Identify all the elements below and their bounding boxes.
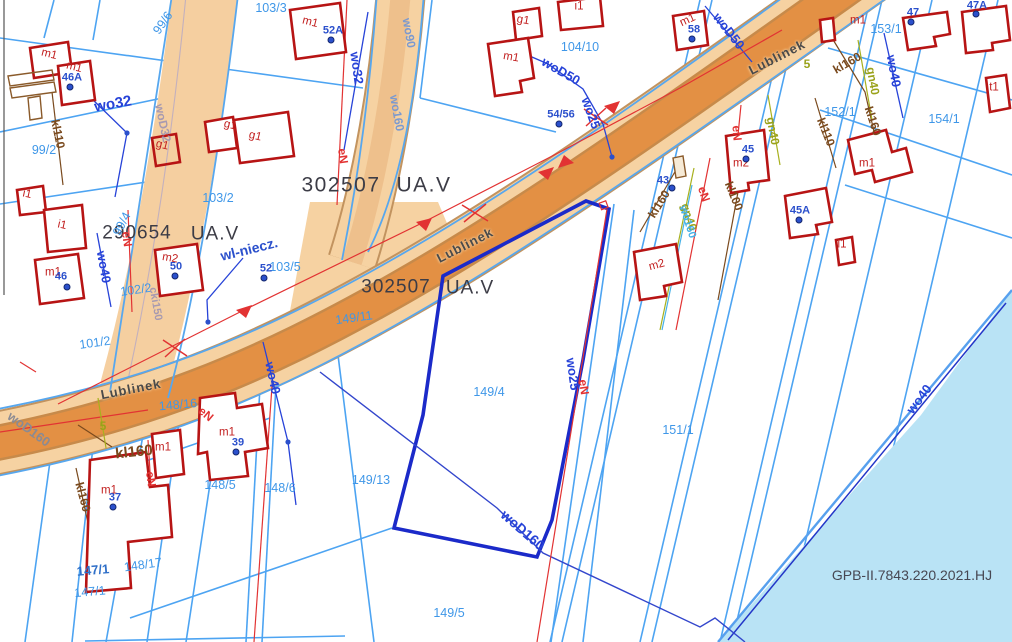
building-outline <box>488 38 534 96</box>
building-outline <box>986 75 1010 112</box>
building-outline <box>290 3 346 59</box>
building-outline <box>58 61 95 105</box>
building-outline <box>726 130 769 193</box>
building-outline <box>152 430 184 478</box>
building-outline <box>820 18 835 42</box>
building-outline <box>17 186 46 215</box>
map-canvas[interactable]: 302507UA.V290654UA.V302507UA.VLublinekLu… <box>0 0 1012 642</box>
building-outline <box>903 12 950 50</box>
building-outline <box>205 117 237 152</box>
building-outline <box>785 188 832 238</box>
building-outline <box>836 237 855 265</box>
water-area <box>718 290 1012 642</box>
building-outline <box>673 11 708 50</box>
water-conduit-line <box>320 372 745 642</box>
road-strip-left <box>132 0 206 392</box>
building-outline <box>44 205 86 252</box>
building-outline <box>513 8 542 40</box>
building-outline <box>155 244 203 296</box>
building-outline <box>962 6 1010 53</box>
building-outline <box>634 244 682 300</box>
building-outline <box>558 0 603 30</box>
cadastral-map <box>0 0 1012 642</box>
roads <box>0 0 895 480</box>
building-outline <box>234 112 294 163</box>
building-outline <box>198 393 268 480</box>
building-outline <box>35 254 84 304</box>
